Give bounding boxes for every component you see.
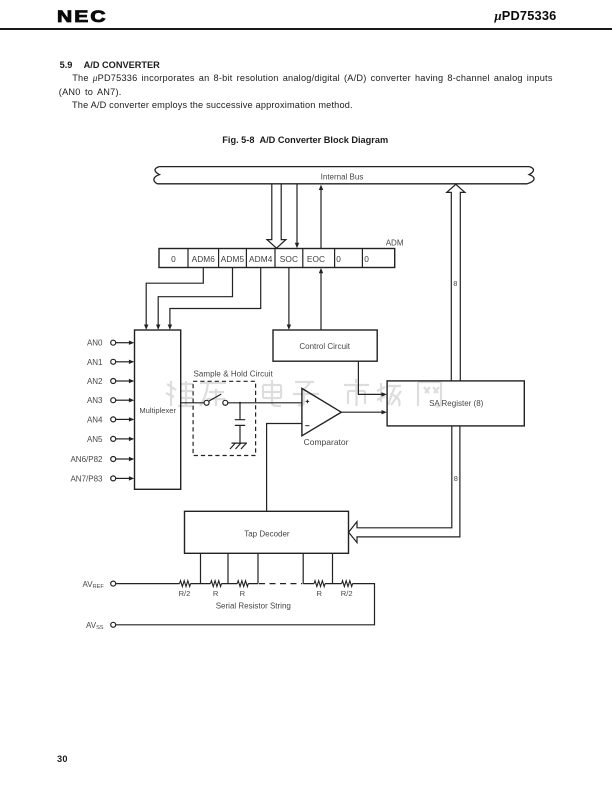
svg-text:AVSS: AVSS [86, 621, 104, 631]
svg-text:Tap Decoder: Tap Decoder [244, 529, 290, 538]
svg-text:R: R [316, 589, 322, 598]
svg-text:AN4: AN4 [87, 415, 103, 424]
svg-text:0: 0 [364, 254, 369, 264]
svg-text:AN7/P83: AN7/P83 [70, 474, 103, 483]
svg-text:AN2: AN2 [87, 377, 103, 386]
svg-text:0: 0 [171, 254, 176, 264]
svg-text:Internal Bus: Internal Bus [321, 173, 364, 182]
svg-text:AN6/P82: AN6/P82 [70, 455, 103, 464]
svg-text:AN5: AN5 [87, 435, 103, 444]
svg-text:Multiplexer: Multiplexer [139, 406, 176, 415]
svg-text:0: 0 [336, 254, 341, 264]
svg-text:8: 8 [454, 474, 458, 483]
svg-text:AN3: AN3 [87, 396, 103, 405]
svg-text:AN0: AN0 [87, 339, 103, 348]
svg-text:Comparator: Comparator [304, 437, 349, 447]
svg-text:ADM6: ADM6 [192, 254, 216, 264]
svg-text:R: R [213, 589, 219, 598]
svg-text:R/2: R/2 [341, 589, 353, 598]
svg-text:SOC: SOC [280, 254, 298, 264]
svg-text:EOC: EOC [307, 254, 325, 264]
svg-text:Sample & Hold Circuit: Sample & Hold Circuit [194, 369, 274, 378]
svg-text:AVREF: AVREF [83, 580, 105, 590]
svg-text:Control Circuit: Control Circuit [299, 342, 350, 351]
svg-text:ADM4: ADM4 [249, 254, 273, 264]
svg-text:Serial Resistor String: Serial Resistor String [216, 601, 291, 610]
svg-text:R/2: R/2 [179, 589, 191, 598]
svg-text:SA Register (8): SA Register (8) [429, 399, 484, 408]
svg-text:ADM5: ADM5 [221, 254, 245, 264]
svg-text:ADM: ADM [386, 238, 404, 247]
svg-text:R: R [240, 589, 246, 598]
svg-text:8: 8 [453, 279, 457, 288]
svg-text:AN1: AN1 [87, 358, 103, 367]
